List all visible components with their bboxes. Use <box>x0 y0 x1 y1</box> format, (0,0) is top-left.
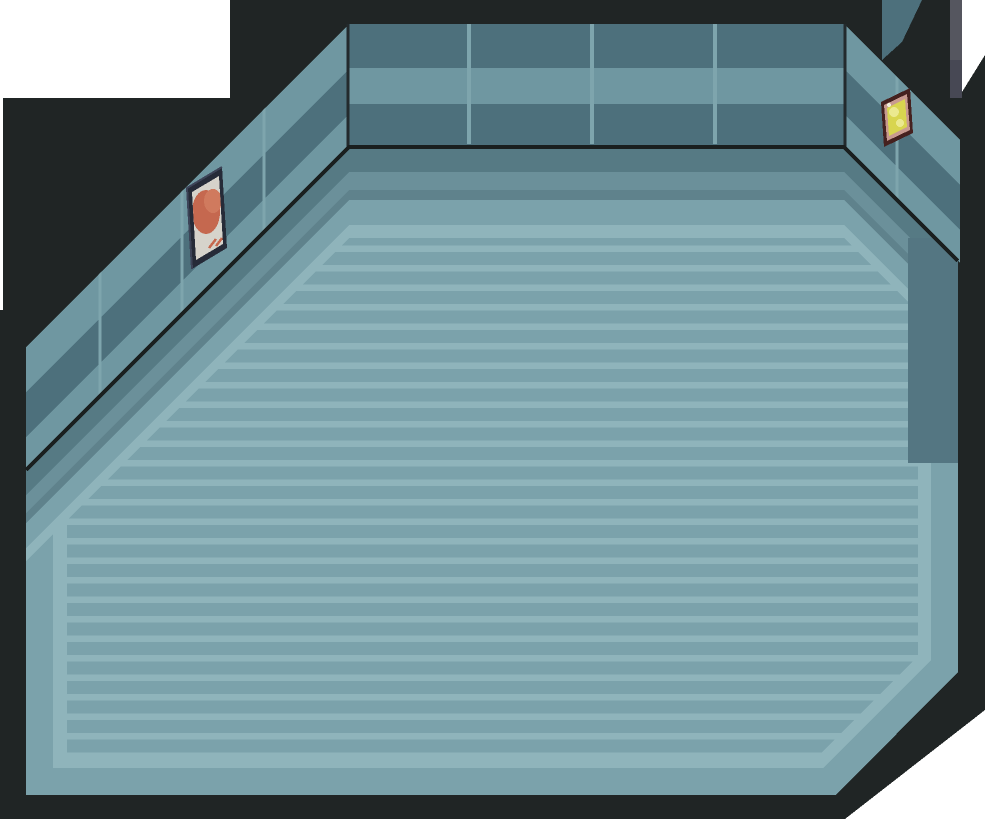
back-wall-band-dark-bottom <box>349 104 844 147</box>
room-map-canvas <box>0 0 985 819</box>
doorway-bottom <box>950 60 962 98</box>
sign-glyph <box>889 107 899 117</box>
sign-glyph <box>896 119 904 127</box>
white-cutout-left-sliver <box>0 98 3 310</box>
doorway-column[interactable] <box>950 0 962 98</box>
back-wall <box>349 24 844 147</box>
sign-glint <box>887 103 891 107</box>
poster-art-blob-highlight <box>204 189 222 213</box>
doorway-top <box>950 0 962 60</box>
floor-shadow-right <box>908 238 958 463</box>
room-map-svg <box>0 0 985 819</box>
back-wall-band-dark-top <box>349 24 844 68</box>
white-cutout-top-left <box>0 0 230 98</box>
back-wall-band-light <box>349 68 844 104</box>
